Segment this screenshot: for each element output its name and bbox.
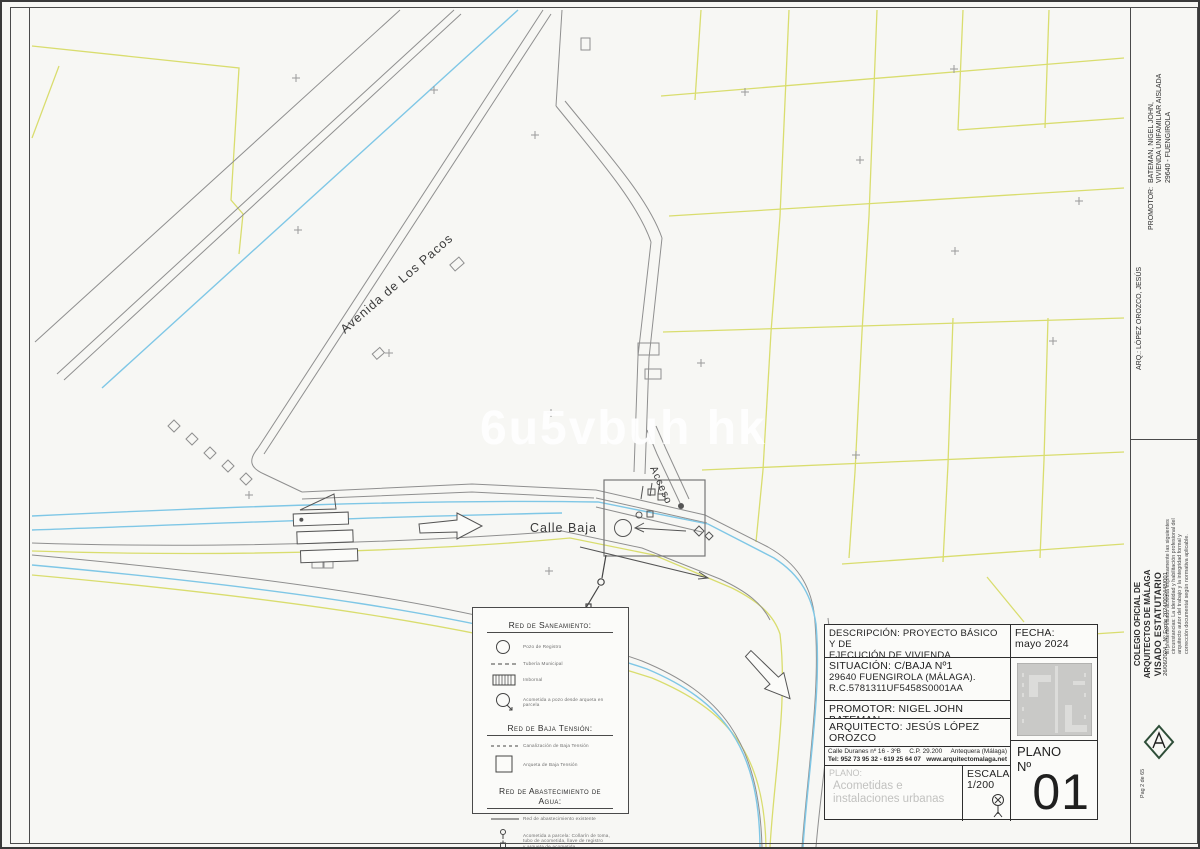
sidebar-architect: ARQ.: LÓPEZ OROZCO, JESÚS: [1136, 220, 1143, 370]
legend-item: Imbornal: [487, 673, 620, 687]
promoter-cell: PROMOTOR: NIGEL JOHN BATEMAN: [825, 701, 1011, 719]
sidebar-section-divider: [1130, 439, 1198, 440]
architect-cell: ARQUITECTO: JESÚS LÓPEZ OROZCO: [825, 719, 1011, 747]
legend-item: Tubería Municipal: [487, 660, 620, 668]
legend-item: Red de abastecimiento existente: [487, 815, 620, 823]
stamp-mark-icon: [988, 793, 1008, 819]
date-cell: FECHA: mayo 2024: [1011, 625, 1098, 658]
legend-title-agua: Red de Abastecimiento de Agua:: [487, 786, 613, 809]
solid-line-icon: [487, 815, 523, 823]
plano-number: 01: [1032, 767, 1090, 817]
location-cell: SITUACIÓN: C/BAJA Nº1 29640 FUENGIROLA (…: [825, 658, 1011, 701]
colegio-logo-icon: [1143, 724, 1175, 760]
drawing-sheet: 6u5vbuh hk Avenida de Los Pacos Calle Ba…: [0, 0, 1200, 849]
circle-arrow-icon: [487, 692, 523, 712]
square-icon: [487, 755, 523, 775]
sidebar-divider-line: [1130, 7, 1131, 844]
scale-cell: ESCALA: 1/200: [963, 766, 1011, 821]
plano-name-cell: PLANO: Acometidas e instalaciones urbana…: [825, 766, 963, 821]
hydrant-icon: [487, 828, 523, 849]
legend-title-baja-tension: Red de Baja Tensión:: [487, 723, 613, 736]
legend-item: Pozo de Registro: [487, 639, 620, 655]
legend-item: Acometida a pozo desde arqueta en parcel…: [487, 692, 620, 712]
binding-margin-line: [29, 7, 30, 844]
title-block: DESCRIPCIÓN: PROYECTO BÁSICO Y DE EJECUC…: [824, 624, 1098, 820]
sidebar-page-note: Pag 2 de 65: [1140, 740, 1146, 798]
sidebar-colegio: COLEGIO OFICIAL DE ARQUITECTOS DE MÁLAGA: [1133, 544, 1152, 704]
legend-item: Arqueta de Baja Tensión: [487, 755, 620, 775]
legend-item: Acometida a parcela: Collarín de toma, t…: [487, 828, 620, 849]
legend-title-saneamiento: Red de Saneamiento:: [487, 620, 613, 633]
dashed-line-icon: [487, 742, 523, 750]
location-thumbnail-cell: [1011, 658, 1098, 741]
sidebar-visado-title: VISADO ESTATUTARIO 26/06/2024 - Nº Expte…: [1153, 544, 1170, 704]
plano-number-cell: PLANO Nº 01: [1011, 741, 1098, 821]
sidebar-promoter: PROMOTOR: BATEMAN, NIGEL JOHN, VIVIENDA …: [1148, 20, 1173, 230]
circle-icon: [487, 639, 523, 655]
legend-item: Canalización de Baja Tensión: [487, 742, 620, 750]
location-map-thumbnail: [1017, 663, 1092, 736]
architect-address-cell: Calle Duranes nº 16 - 3ºB C.P. 29.200 An…: [825, 747, 1011, 766]
description-cell: DESCRIPCIÓN: PROYECTO BÁSICO Y DE EJECUC…: [825, 625, 1011, 658]
dashed-line-icon: [487, 660, 523, 668]
hatched-rect-icon: [487, 673, 523, 687]
legend-box: Red de Saneamiento: Pozo de Registro Tub…: [472, 607, 629, 814]
